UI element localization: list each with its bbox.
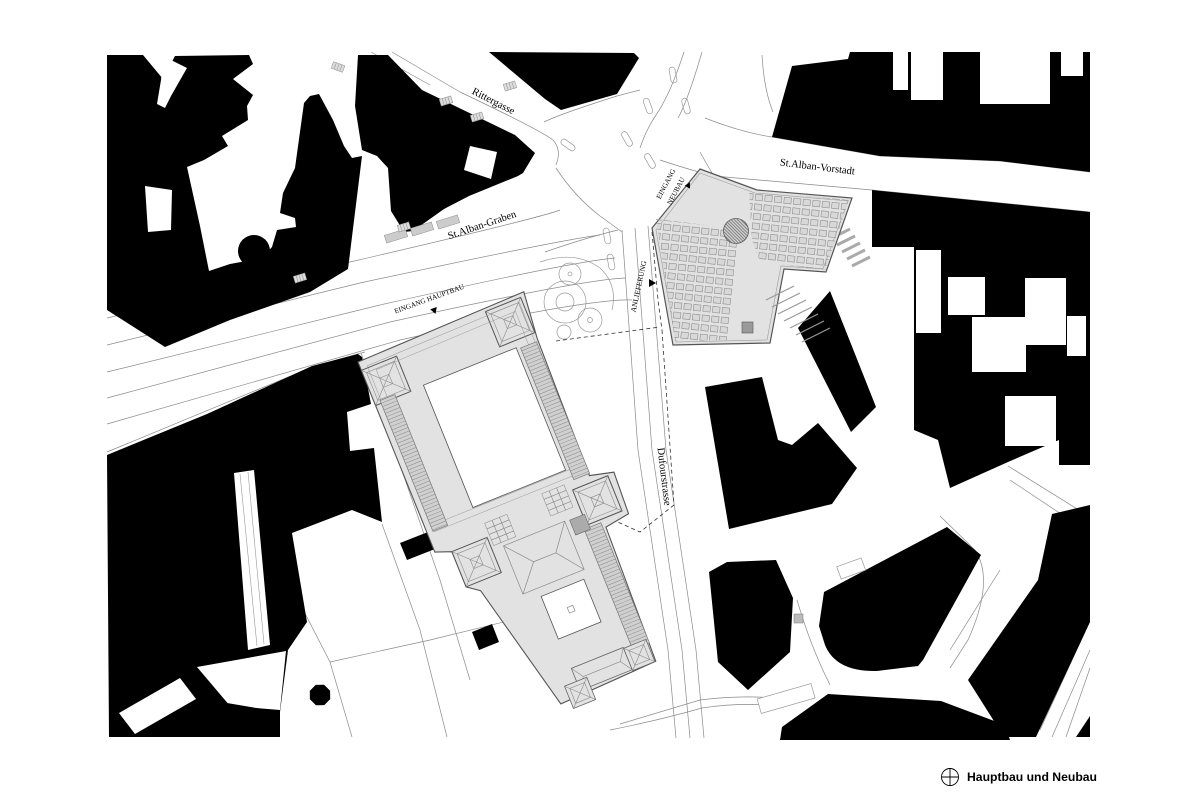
svg-text:Hauptbau und Neubau: Hauptbau und Neubau — [967, 770, 1097, 784]
